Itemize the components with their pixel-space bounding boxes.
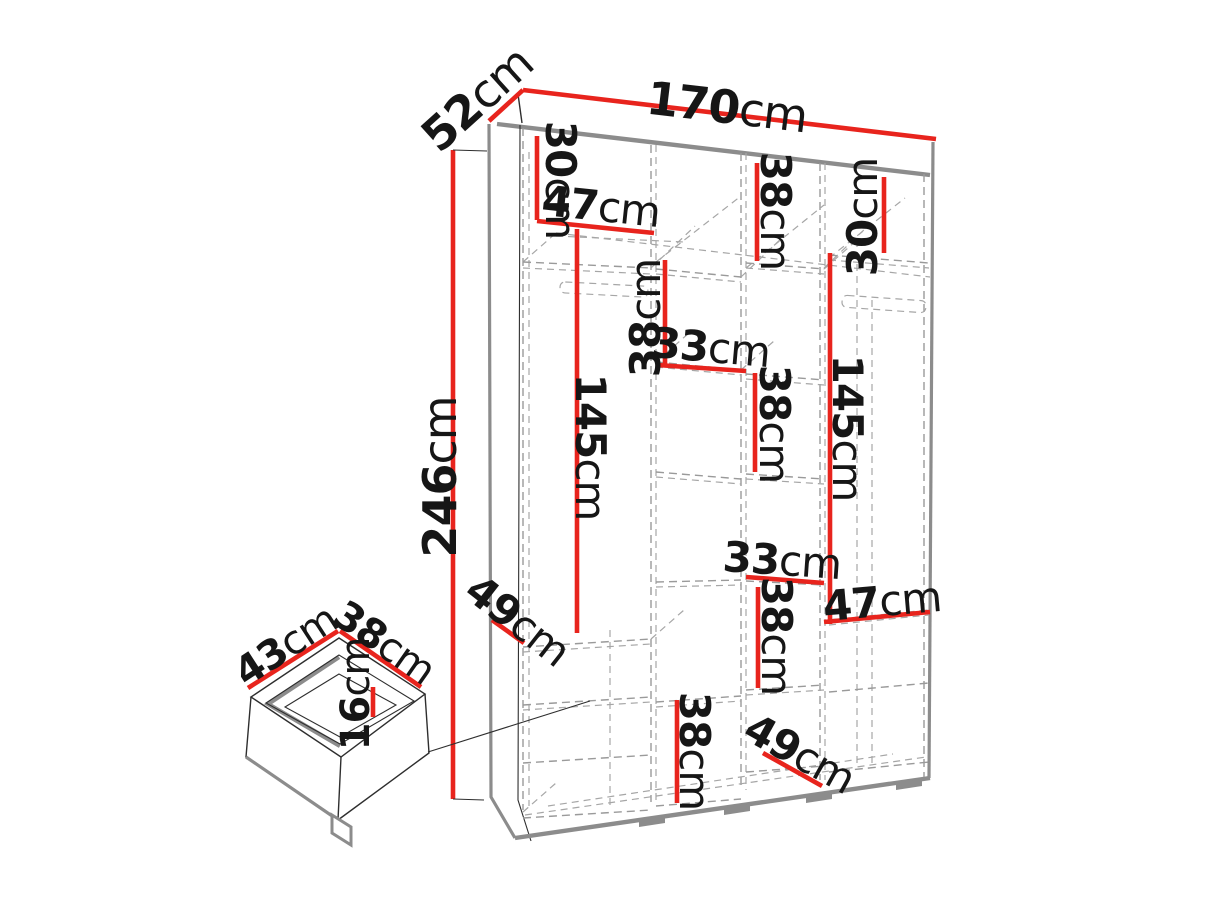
- label-overall-height: 246cm: [413, 396, 467, 557]
- label-bottom-49: 49cm: [736, 703, 863, 803]
- drawer-foot: [332, 815, 351, 845]
- wardrobe-dimension-diagram: 170cm 52cm 246cm 30cm 47cm 38cm 30cm 38c…: [0, 0, 1214, 911]
- label-top-right-30: 30cm: [838, 158, 887, 276]
- label-lower-right-38: 38cm: [753, 577, 802, 695]
- label-mid-right-38: 38cm: [751, 365, 800, 483]
- dim-tick-height-bottom: [453, 799, 484, 800]
- label-left-145: 145cm: [567, 374, 616, 521]
- diagram-canvas: 170cm 52cm 246cm 30cm 47cm 38cm 30cm 38c…: [0, 0, 1214, 911]
- label-drawer-16: 16cm: [333, 638, 379, 751]
- wardrobe-right-edge: [929, 142, 933, 778]
- label-bottom-38: 38cm: [671, 692, 720, 810]
- label-right-145: 145cm: [824, 355, 873, 502]
- label-top-center-38: 38cm: [752, 152, 801, 270]
- wardrobe-left-edge: [489, 124, 515, 838]
- drawer-body-left: [246, 697, 341, 820]
- label-right-47: 47cm: [821, 571, 943, 630]
- drawer-bottom-edge: [246, 757, 338, 820]
